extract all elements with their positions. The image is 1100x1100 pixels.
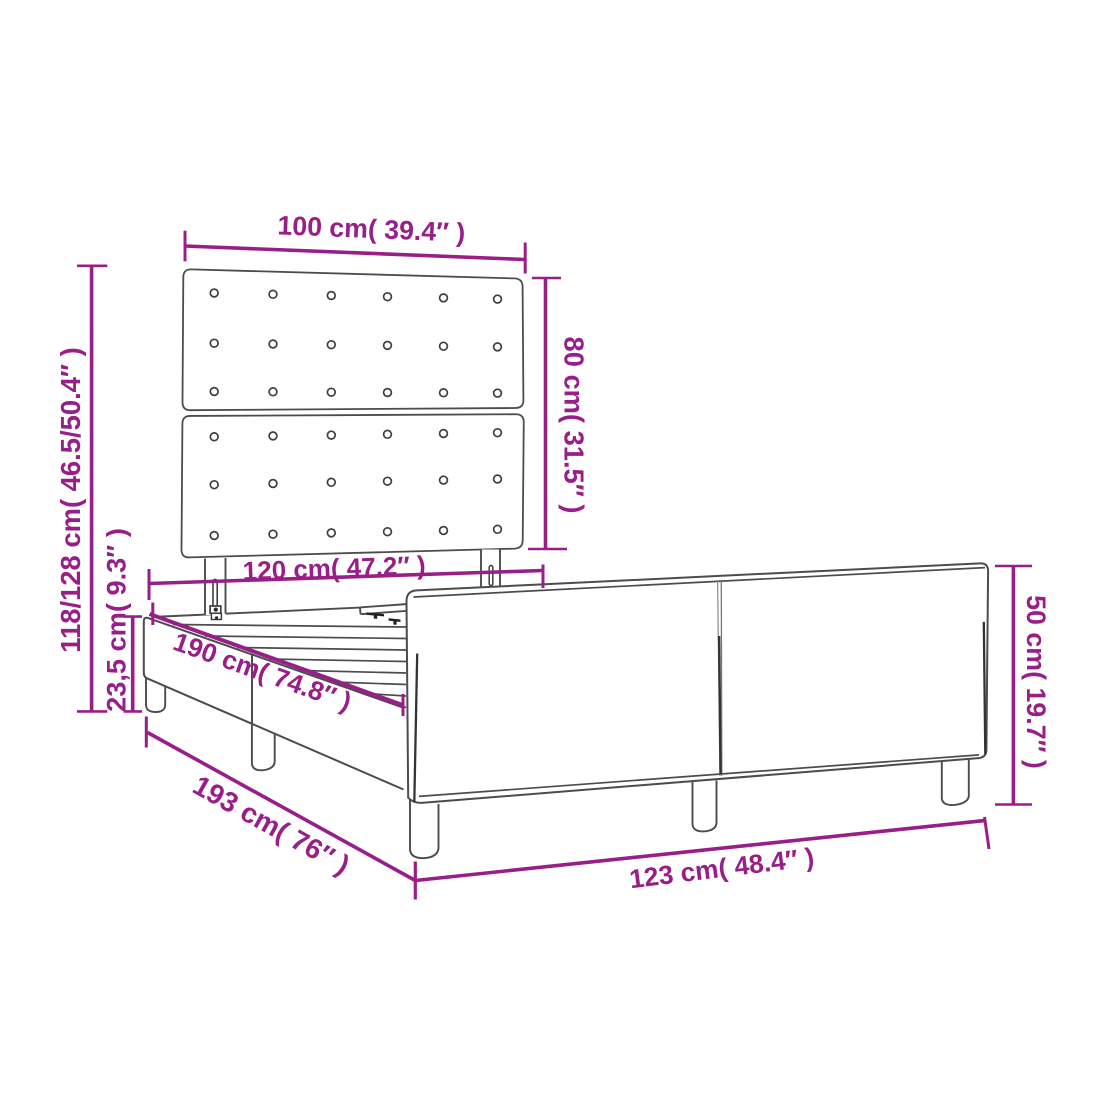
svg-text:80 cm( 31.5″ ): 80 cm( 31.5″ )	[559, 337, 590, 514]
svg-text:50 cm( 19.7″ ): 50 cm( 19.7″ )	[1021, 595, 1051, 769]
svg-text:23,5 cm( 9.3″ ): 23,5 cm( 9.3″ )	[101, 528, 132, 712]
svg-text:118/128 cm( 46.5/50.4″ ): 118/128 cm( 46.5/50.4″ )	[55, 347, 86, 653]
svg-text:120 cm( 47.2″ ): 120 cm( 47.2″ )	[242, 550, 426, 586]
